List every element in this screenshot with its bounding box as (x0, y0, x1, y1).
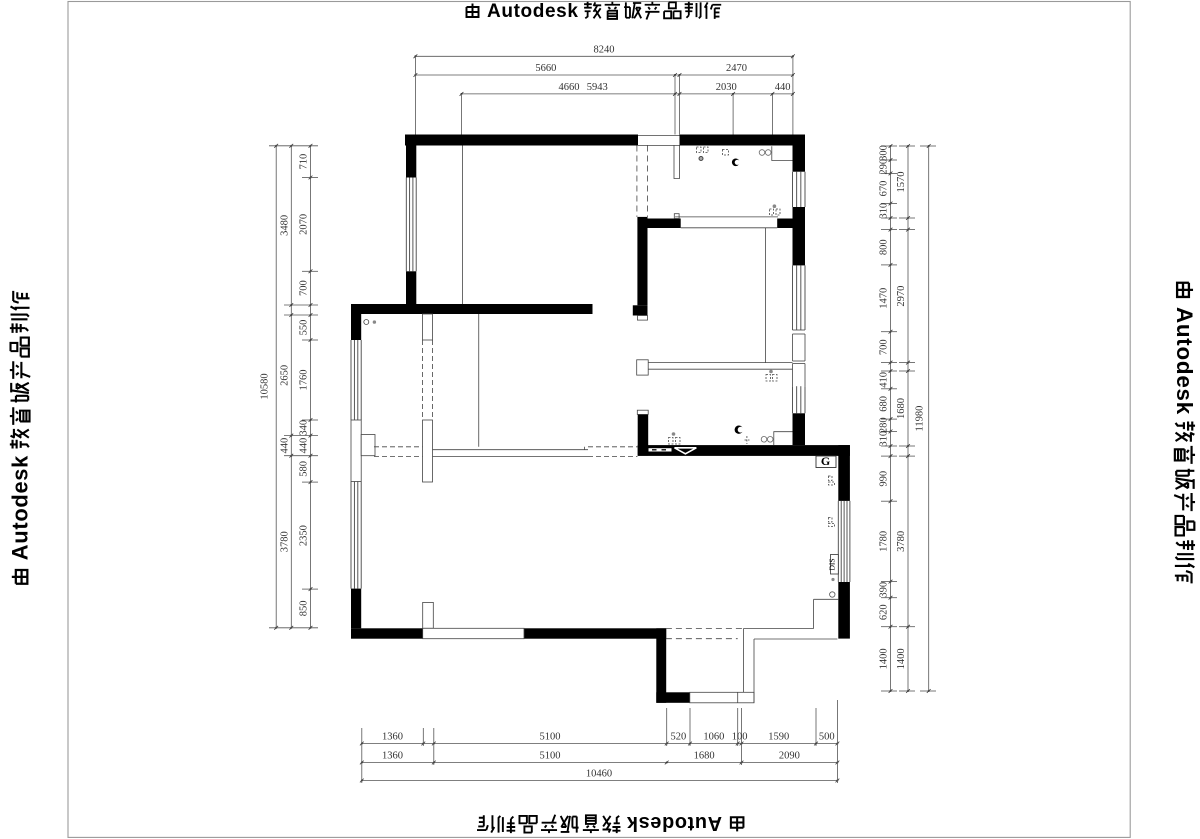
svg-text:3780: 3780 (896, 531, 907, 552)
svg-text:520: 520 (671, 732, 687, 743)
svg-text:800: 800 (879, 239, 890, 255)
svg-text:580: 580 (298, 461, 309, 477)
svg-text:440: 440 (280, 438, 291, 454)
svg-text:3780: 3780 (280, 531, 291, 552)
svg-text:500: 500 (819, 732, 835, 743)
svg-text:310: 310 (879, 431, 890, 447)
svg-text:700: 700 (298, 280, 309, 296)
svg-text:1780: 1780 (879, 531, 890, 552)
svg-text:1060: 1060 (703, 732, 724, 743)
svg-text:1400: 1400 (896, 648, 907, 669)
svg-text:5100: 5100 (540, 732, 561, 743)
svg-text:340: 340 (298, 420, 309, 436)
svg-text:2970: 2970 (896, 286, 907, 307)
svg-text:390: 390 (879, 582, 890, 598)
svg-text:990: 990 (879, 471, 890, 487)
svg-text:4660: 4660 (559, 82, 580, 93)
svg-text:440: 440 (298, 438, 309, 454)
svg-text:700: 700 (879, 339, 890, 355)
svg-text:410: 410 (879, 372, 890, 388)
svg-text:5943: 5943 (587, 82, 608, 93)
svg-text:100: 100 (732, 732, 748, 743)
svg-text:DIS: DIS (828, 558, 837, 570)
svg-text:310: 310 (879, 203, 890, 219)
svg-text:8240: 8240 (594, 45, 615, 56)
svg-text:1570: 1570 (896, 172, 907, 193)
svg-text:5100: 5100 (540, 751, 561, 762)
svg-text:3480: 3480 (280, 215, 291, 236)
svg-text:1470: 1470 (879, 288, 890, 309)
svg-text:1400: 1400 (879, 648, 890, 669)
svg-text:710: 710 (298, 154, 309, 170)
svg-text:5660: 5660 (535, 63, 556, 74)
svg-text:280: 280 (879, 417, 890, 433)
svg-text:G: G (821, 454, 830, 468)
svg-text:1680: 1680 (896, 398, 907, 419)
svg-text:2090: 2090 (779, 751, 800, 762)
svg-text:680: 680 (879, 396, 890, 412)
svg-text:2070: 2070 (298, 214, 309, 235)
svg-text:11980: 11980 (915, 406, 926, 432)
svg-text:440: 440 (775, 82, 791, 93)
svg-text:1760: 1760 (298, 370, 309, 391)
svg-text:300: 300 (879, 145, 890, 161)
svg-text:2470: 2470 (726, 63, 747, 74)
svg-text:290: 290 (879, 159, 890, 175)
svg-text:2650: 2650 (280, 365, 291, 386)
svg-text:1680: 1680 (694, 751, 715, 762)
svg-text:1360: 1360 (382, 751, 403, 762)
svg-text:10580: 10580 (260, 373, 271, 399)
svg-text:2030: 2030 (716, 82, 737, 93)
svg-text:10460: 10460 (586, 769, 612, 780)
svg-text:850: 850 (298, 601, 309, 617)
svg-text:670: 670 (879, 181, 890, 197)
svg-text:620: 620 (879, 604, 890, 620)
svg-text:1360: 1360 (382, 732, 403, 743)
svg-text:1590: 1590 (768, 732, 789, 743)
svg-text:550: 550 (298, 320, 309, 336)
svg-text:2350: 2350 (298, 525, 309, 546)
